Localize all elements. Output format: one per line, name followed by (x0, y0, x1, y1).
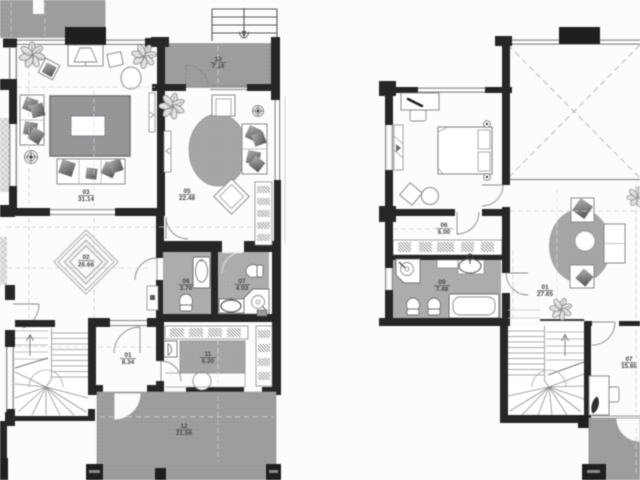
svg-text:06: 06 (440, 222, 448, 229)
svg-text:8.34: 8.34 (122, 359, 135, 366)
svg-text:6.20: 6.20 (202, 358, 215, 365)
svg-text:22.48: 22.48 (179, 195, 195, 202)
svg-text:3.70: 3.70 (180, 285, 193, 292)
svg-text:06: 06 (182, 278, 190, 285)
svg-text:21.56: 21.56 (176, 430, 192, 437)
svg-text:7.48: 7.48 (436, 286, 449, 293)
svg-text:26.66: 26.66 (78, 262, 94, 269)
svg-text:11: 11 (205, 351, 212, 358)
svg-text:4.03: 4.03 (236, 285, 249, 292)
svg-text:03: 03 (82, 189, 90, 196)
svg-text:6.00: 6.00 (438, 229, 451, 236)
svg-text:27.65: 27.65 (537, 291, 553, 298)
svg-text:12: 12 (180, 423, 188, 430)
svg-text:09: 09 (438, 279, 446, 286)
svg-text:31.14: 31.14 (78, 196, 94, 203)
svg-text:07: 07 (238, 278, 246, 285)
svg-text:15.88: 15.88 (621, 363, 637, 370)
svg-text:07: 07 (625, 356, 633, 363)
svg-text:01: 01 (541, 284, 549, 291)
svg-text:02: 02 (82, 254, 90, 261)
svg-text:01: 01 (124, 352, 132, 359)
svg-text:05: 05 (183, 188, 191, 195)
